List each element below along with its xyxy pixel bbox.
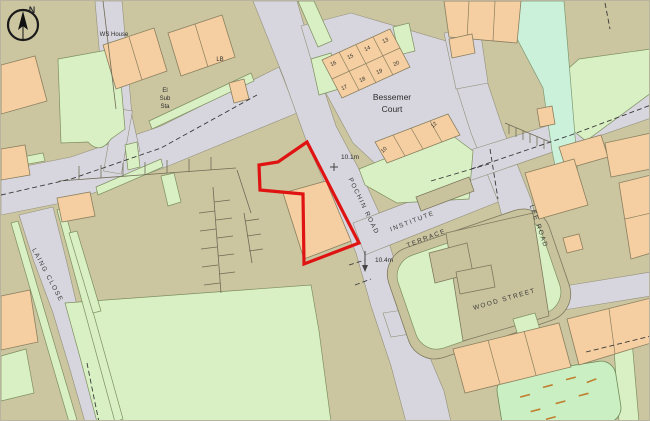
building xyxy=(537,106,555,127)
green-strip-tl-2 xyxy=(125,142,140,170)
building xyxy=(1,145,30,180)
label-bessemer-2: Court xyxy=(382,104,403,114)
label-ws-house: WS House xyxy=(100,32,129,38)
label-spot-height-1: 10.1m xyxy=(341,154,359,161)
label-bessemer-1: Bessemer xyxy=(373,92,411,102)
label-spot-height-2: 10.4m xyxy=(375,257,393,264)
map-canvas: N WS House LB El Sub Sta Bessemer Court … xyxy=(0,0,650,421)
label-sta: Sta xyxy=(160,104,170,110)
building xyxy=(444,1,521,43)
label-sub: Sub xyxy=(160,96,171,102)
label-lb: LB xyxy=(216,57,223,63)
north-label: N xyxy=(29,5,36,15)
building xyxy=(563,234,583,253)
label-el: El xyxy=(162,88,167,94)
